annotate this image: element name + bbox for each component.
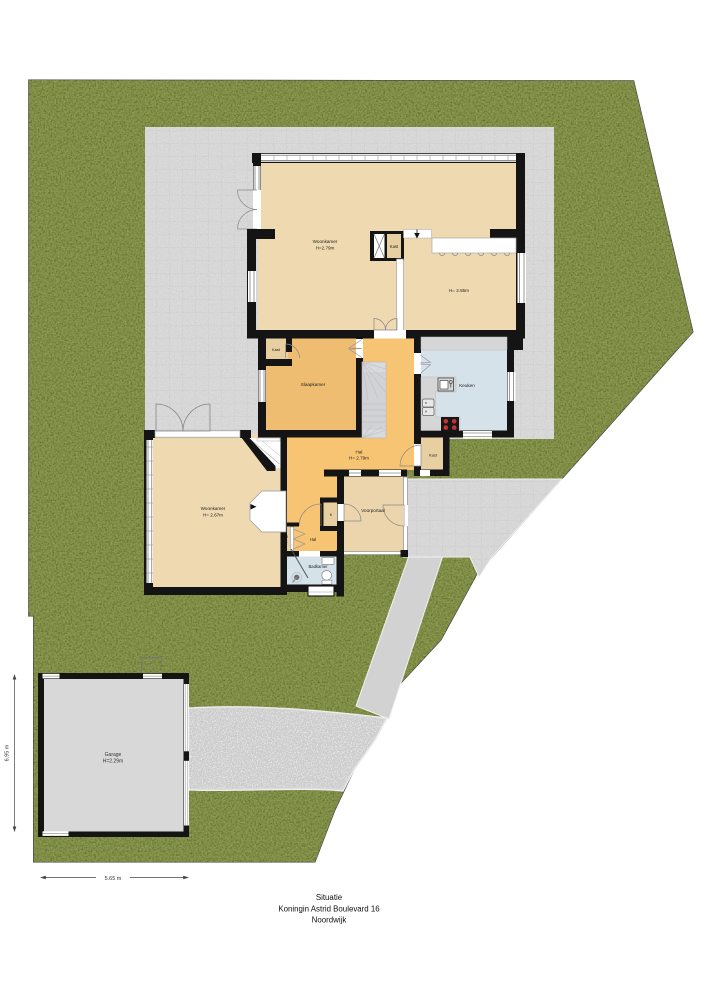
svg-text:H=2.29m: H=2.29m: [103, 759, 123, 765]
svg-text:Woonkamer: Woonkamer: [313, 239, 338, 244]
svg-text:Koningin Astrid Boulevard 16: Koningin Astrid Boulevard 16: [278, 904, 380, 913]
svg-text:H= 2.55m: H= 2.55m: [449, 288, 469, 293]
svg-text:Slaapkamer: Slaapkamer: [301, 382, 326, 387]
svg-text:Woonkamer: Woonkamer: [201, 506, 226, 511]
svg-text:Kast: Kast: [429, 453, 438, 458]
svg-text:H=2.79m: H=2.79m: [316, 246, 335, 251]
svg-text:Hal: Hal: [356, 450, 363, 455]
svg-text:Voorportaal: Voorportaal: [361, 508, 385, 513]
svg-text:Kast: Kast: [390, 244, 399, 249]
svg-text:Situatie: Situatie: [316, 893, 343, 902]
svg-text:Keuken: Keuken: [459, 383, 475, 388]
svg-text:Kast: Kast: [272, 347, 281, 352]
svg-text:Garage: Garage: [105, 752, 122, 758]
svg-text:5.65 m: 5.65 m: [105, 876, 122, 882]
svg-text:H= 2.67m: H= 2.67m: [203, 513, 223, 518]
svg-text:K: K: [330, 513, 333, 517]
svg-text:H= 2.79m: H= 2.79m: [349, 456, 369, 461]
svg-text:Noordwijk: Noordwijk: [312, 916, 347, 925]
svg-text:Hal: Hal: [310, 537, 316, 542]
svg-text:6.95 m: 6.95 m: [5, 744, 11, 761]
